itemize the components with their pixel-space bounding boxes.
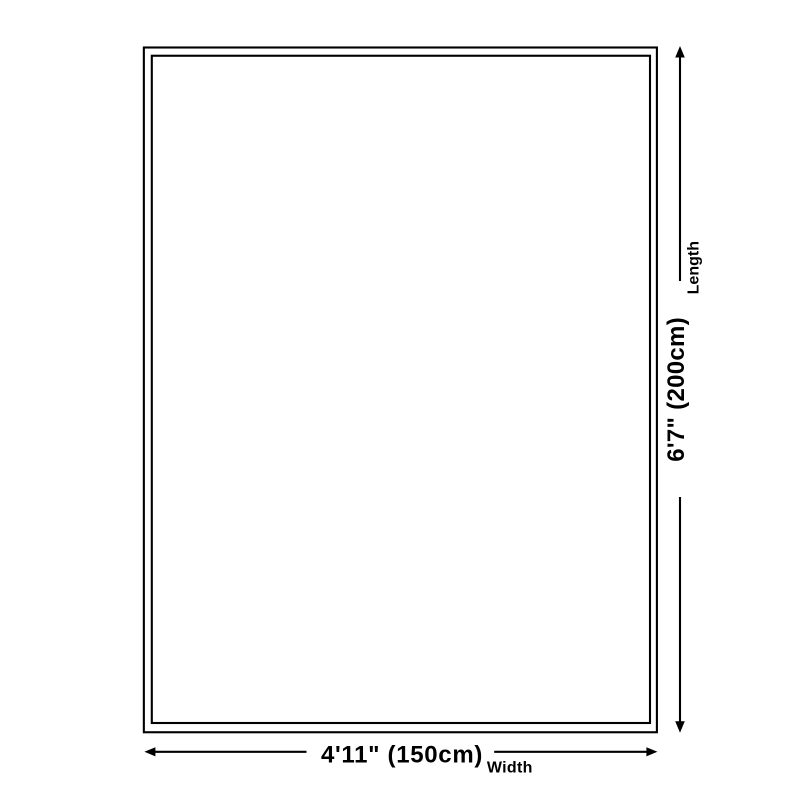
svg-text:Width: Width [487,760,533,777]
svg-text:4'11" (150cm): 4'11" (150cm) [321,742,483,769]
svg-text:6'7" (200cm): 6'7" (200cm) [663,317,690,462]
svg-text:Length: Length [686,241,703,294]
